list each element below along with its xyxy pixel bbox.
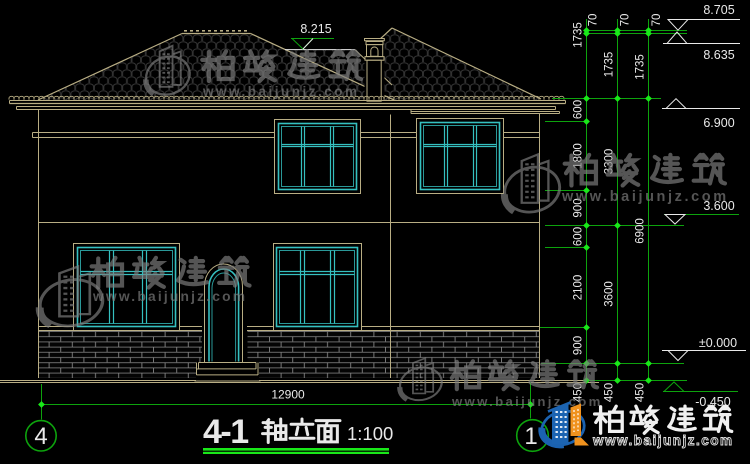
svg-text:www.baijunjz.com: www.baijunjz.com: [202, 84, 360, 99]
svg-text:8.635: 8.635: [703, 48, 734, 62]
svg-text:6.900: 6.900: [703, 116, 734, 130]
svg-text:4-1: 4-1: [203, 413, 248, 451]
svg-text:450: 450: [635, 383, 647, 402]
svg-text:70: 70: [651, 14, 663, 27]
svg-text:www.baijunjz.com: www.baijunjz.com: [92, 289, 247, 304]
svg-text:4: 4: [34, 423, 47, 450]
svg-text:70: 70: [620, 14, 632, 27]
svg-text:1735: 1735: [573, 22, 585, 48]
svg-text:1:100: 1:100: [347, 423, 393, 444]
svg-text:±0.000: ±0.000: [699, 336, 737, 350]
svg-text:8.215: 8.215: [300, 22, 331, 36]
svg-text:1735: 1735: [635, 54, 647, 80]
svg-text:www.baijunjz.com: www.baijunjz.com: [561, 189, 729, 205]
svg-text:12900: 12900: [271, 388, 305, 402]
svg-text:8.705: 8.705: [703, 3, 734, 17]
svg-text:70: 70: [588, 14, 600, 27]
svg-text:www.baijunjz.com: www.baijunjz.com: [592, 433, 734, 448]
svg-text:1: 1: [524, 423, 537, 450]
svg-text:3600: 3600: [604, 281, 616, 307]
svg-text:900: 900: [573, 336, 585, 355]
svg-text:6900: 6900: [635, 218, 647, 244]
svg-text:1735: 1735: [604, 52, 616, 78]
svg-text:600: 600: [573, 227, 585, 246]
svg-text:450: 450: [604, 383, 616, 402]
svg-text:600: 600: [573, 100, 585, 119]
svg-text:2100: 2100: [573, 275, 585, 301]
